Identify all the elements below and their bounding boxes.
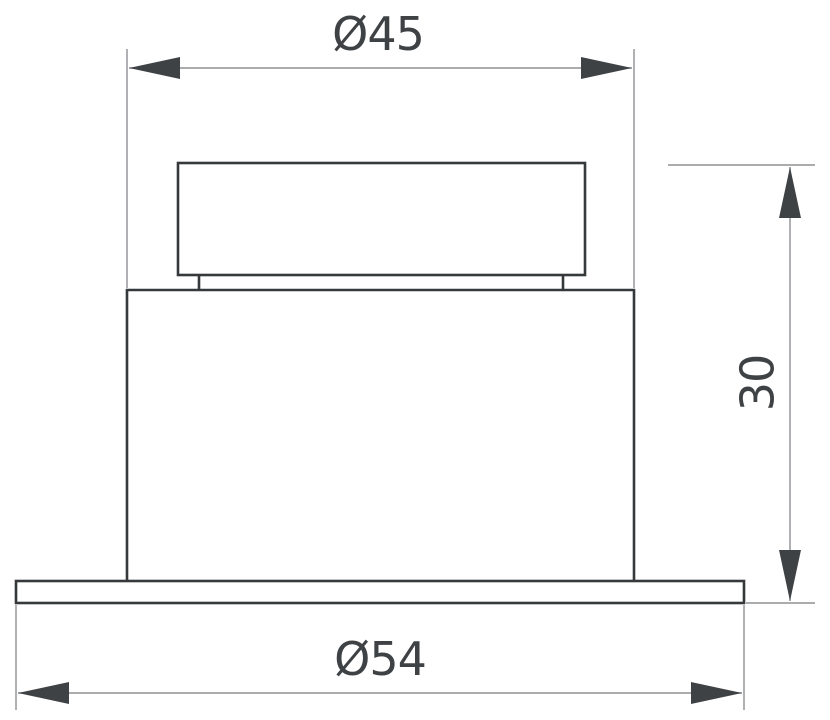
dimension-line-group: [16, 49, 815, 710]
dim30-arrow-down-icon: [779, 550, 801, 601]
flange-diameter-label: Ø54: [334, 632, 426, 686]
top-diameter-label: Ø45: [332, 7, 424, 61]
technical-drawing: Ø45 Ø54 30: [0, 0, 830, 720]
drawing-canvas: Ø45 Ø54 30: [0, 0, 830, 720]
lamp-flange-outline: [16, 581, 744, 603]
dim54-arrow-left-icon: [18, 682, 69, 704]
dim45-arrow-right-icon: [581, 57, 632, 79]
height-label: 30: [731, 355, 785, 412]
lamp-body-outline: [127, 290, 634, 582]
fixture-outline-group: [16, 163, 744, 603]
dim54-arrow-right-icon: [691, 682, 742, 704]
arrowhead-group: [18, 57, 801, 704]
dim30-arrow-up-icon: [779, 167, 801, 218]
dim45-arrow-left-icon: [129, 57, 180, 79]
lamp-head-outline: [178, 163, 585, 275]
dimension-label-group: Ø45 Ø54 30: [332, 7, 784, 686]
